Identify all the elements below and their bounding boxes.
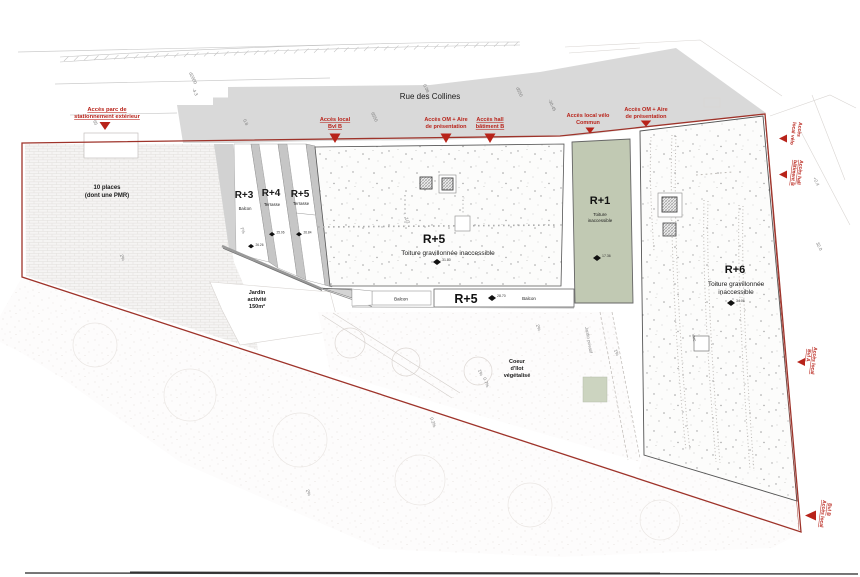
svg-text:R+5: R+5: [423, 232, 446, 246]
svg-text:bâtiment B: bâtiment B: [476, 124, 504, 130]
svg-text:Accès OM + Aire: Accès OM + Aire: [624, 107, 667, 113]
svg-text:10 places: 10 places: [93, 185, 121, 191]
svg-text:de présentation: de présentation: [626, 114, 668, 120]
svg-text:R+6: R+6: [725, 264, 746, 276]
svg-text:Accès OM + Aire: Accès OM + Aire: [424, 117, 467, 123]
svg-text:Terrasse: Terrasse: [293, 201, 310, 206]
svg-text:(dont une PMR): (dont une PMR): [85, 193, 129, 199]
svg-text:inaccessible: inaccessible: [718, 289, 754, 296]
svg-text:26.26: 26.26: [256, 243, 264, 247]
svg-text:Balcon: Balcon: [522, 296, 536, 301]
svg-text:R+5: R+5: [454, 292, 477, 306]
svg-text:Terrasse: Terrasse: [264, 202, 281, 207]
svg-text:Toiture gravillonnée inaccessi: Toiture gravillonnée inaccessible: [401, 250, 495, 257]
svg-text:inaccessible: inaccessible: [588, 218, 613, 223]
svg-text:végétalisé: végétalisé: [504, 373, 531, 379]
svg-text:Toiture: Toiture: [593, 212, 607, 217]
svg-text:25.06: 25.06: [277, 231, 285, 235]
svg-text:Accès hall: Accès hall: [476, 117, 504, 123]
svg-text:31.80: 31.80: [442, 258, 451, 262]
svg-text:Balcon: Balcon: [394, 297, 408, 302]
svg-text:R+5: R+5: [291, 189, 310, 200]
svg-text:stationnement extérieur: stationnement extérieur: [74, 114, 140, 120]
svg-text:26.84: 26.84: [304, 231, 312, 235]
svg-text:Commun: Commun: [576, 120, 600, 126]
svg-text:Accès local vélo: Accès local vélo: [567, 113, 610, 119]
svg-text:Bvl B: Bvl B: [328, 124, 342, 130]
svg-text:Balcon: Balcon: [239, 206, 252, 211]
svg-text:d'îlot: d'îlot: [511, 366, 524, 372]
svg-text:R+4: R+4: [262, 188, 281, 199]
svg-text:activité: activité: [248, 297, 267, 303]
svg-text:Rue des Collines: Rue des Collines: [400, 92, 460, 101]
svg-text:Coeur: Coeur: [509, 359, 526, 365]
svg-text:Accès local: Accès local: [320, 117, 351, 123]
svg-text:de présentation: de présentation: [426, 124, 468, 130]
svg-text:17.36: 17.36: [602, 254, 611, 258]
svg-text:150m²: 150m²: [249, 303, 265, 310]
svg-text:R+1: R+1: [590, 195, 611, 207]
svg-text:28.70: 28.70: [497, 294, 506, 298]
svg-text:Jardin: Jardin: [249, 290, 266, 296]
svg-text:Toiture gravillonnée: Toiture gravillonnée: [708, 281, 765, 288]
svg-text:R+3: R+3: [235, 190, 254, 201]
svg-text:Accès parc de: Accès parc de: [87, 107, 127, 113]
svg-text:34.06: 34.06: [736, 299, 745, 303]
